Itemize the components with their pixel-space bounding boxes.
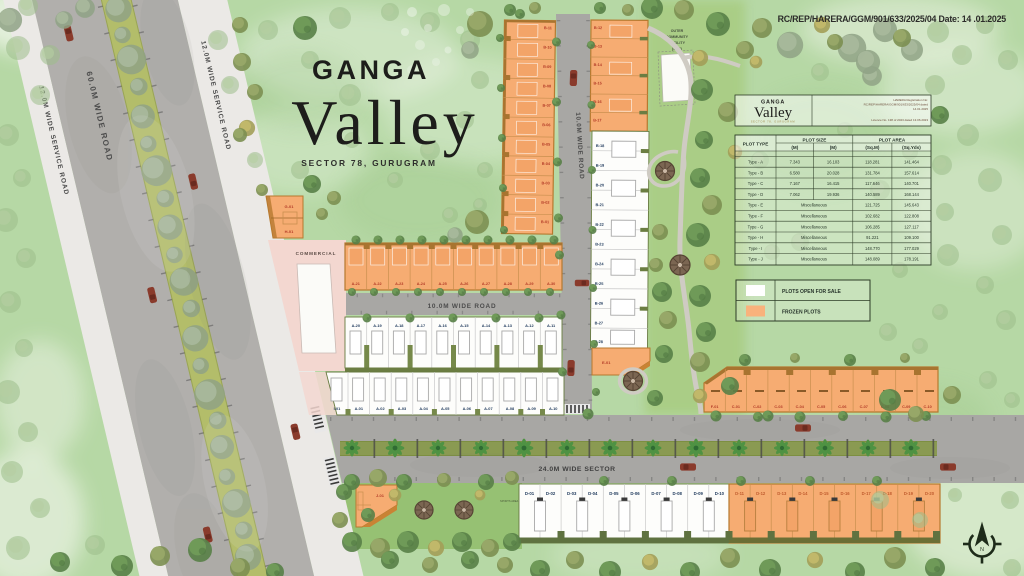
svg-text:B-18: B-18	[596, 143, 605, 148]
svg-text:A-21: A-21	[352, 282, 360, 286]
svg-text:A-10: A-10	[549, 406, 557, 411]
svg-text:C-06: C-06	[838, 405, 846, 409]
svg-text:A-08: A-08	[506, 406, 515, 411]
svg-text:(Sq.M): (Sq.M)	[865, 145, 880, 150]
svg-text:145.643: 145.643	[904, 203, 920, 208]
svg-text:C-07: C-07	[860, 405, 868, 409]
svg-text:B-06: B-06	[542, 123, 550, 127]
svg-text:D-17: D-17	[862, 491, 872, 496]
svg-text:Miscellaneous: Miscellaneous	[801, 214, 827, 219]
svg-text:A-16: A-16	[438, 323, 447, 328]
svg-text:SECTOR 78, GURUGRAM: SECTOR 78, GURUGRAM	[301, 158, 437, 168]
svg-text:A-15: A-15	[460, 323, 469, 328]
svg-text:Miscellaneous: Miscellaneous	[801, 257, 827, 262]
svg-text:B-22: B-22	[595, 222, 604, 227]
svg-text:7.062: 7.062	[790, 192, 801, 197]
svg-text:16.415: 16.415	[827, 181, 840, 186]
svg-text:178.191: 178.191	[904, 257, 920, 262]
svg-text:A-25: A-25	[438, 282, 446, 286]
svg-text:16.103: 16.103	[827, 160, 840, 165]
svg-text:PLOT SIZE: PLOT SIZE	[803, 138, 827, 143]
svg-text:B-08: B-08	[543, 84, 551, 88]
svg-text:140.589: 140.589	[865, 192, 881, 197]
svg-text:Miscellaneous: Miscellaneous	[801, 203, 827, 208]
svg-text:A-03: A-03	[398, 406, 407, 411]
svg-text:122.808: 122.808	[904, 214, 920, 219]
svg-text:24.0M WIDE SECTOR: 24.0M WIDE SECTOR	[538, 466, 615, 473]
svg-text:Type - A: Type - A	[748, 160, 763, 165]
svg-text:A-26: A-26	[460, 282, 468, 286]
svg-text:10.0M WIDE ROAD: 10.0M WIDE ROAD	[428, 303, 497, 310]
svg-text:A-17: A-17	[417, 323, 425, 328]
svg-text:A-02: A-02	[376, 406, 385, 411]
svg-text:I-01: I-01	[334, 406, 342, 411]
svg-text:B-01: B-01	[541, 220, 549, 224]
svg-text:D-15: D-15	[819, 491, 829, 496]
svg-text:D-11: D-11	[735, 491, 745, 496]
svg-text:B-11: B-11	[544, 26, 552, 30]
svg-text:E-01: E-01	[602, 360, 611, 365]
svg-text:C-01: C-01	[732, 405, 740, 409]
svg-text:B-19: B-19	[596, 163, 605, 168]
svg-text:A-30: A-30	[547, 282, 555, 286]
svg-text:GANGA: GANGA	[312, 55, 430, 85]
svg-text:PLOTS OPEN FOR SALE: PLOTS OPEN FOR SALE	[782, 289, 842, 295]
svg-text:RC/REP/HARERA/GGM/901/633/2025: RC/REP/HARERA/GGM/901/633/2025/04 dated	[864, 103, 929, 107]
svg-text:A-23: A-23	[395, 282, 403, 286]
svg-text:141.464: 141.464	[904, 160, 920, 165]
svg-text:C-09: C-09	[902, 405, 910, 409]
svg-text:A-28: A-28	[504, 282, 512, 286]
svg-text:148.089: 148.089	[865, 257, 881, 262]
svg-text:A-19: A-19	[373, 323, 382, 328]
svg-text:Type - H: Type - H	[748, 235, 764, 240]
svg-text:A-14: A-14	[482, 323, 491, 328]
svg-text:B-26: B-26	[595, 301, 604, 306]
svg-text:(M): (M)	[830, 145, 837, 150]
svg-text:SECTOR 78, GURUGRAM: SECTOR 78, GURUGRAM	[751, 120, 796, 124]
svg-text:N: N	[980, 547, 984, 553]
svg-text:Valley: Valley	[754, 105, 793, 121]
svg-text:A-01: A-01	[355, 406, 364, 411]
svg-text:D-19: D-19	[904, 491, 914, 496]
svg-text:D-03: D-03	[567, 491, 577, 496]
svg-text:B-12: B-12	[594, 26, 602, 30]
svg-text:B-13: B-13	[594, 45, 602, 49]
svg-text:D-13: D-13	[777, 491, 787, 496]
svg-text:Type - E: Type - E	[748, 203, 764, 208]
svg-text:D-02: D-02	[546, 491, 556, 496]
svg-text:G-01: G-01	[285, 204, 295, 209]
svg-text:B-03: B-03	[541, 181, 549, 185]
svg-text:A-12: A-12	[525, 323, 534, 328]
svg-text:B-25: B-25	[595, 281, 604, 286]
svg-text:D-08: D-08	[673, 491, 683, 496]
svg-text:131.784: 131.784	[865, 170, 881, 175]
svg-text:Type - D: Type - D	[748, 192, 764, 197]
svg-text:(M): (M)	[791, 145, 798, 150]
svg-text:127.117: 127.117	[904, 224, 919, 229]
svg-text:Type - B: Type - B	[748, 170, 764, 175]
svg-text:D-05: D-05	[609, 491, 619, 496]
svg-text:D-04: D-04	[588, 491, 598, 496]
svg-text:OUTER: OUTER	[671, 29, 684, 33]
svg-text:7.167: 7.167	[790, 181, 801, 186]
svg-text:177.029: 177.029	[904, 246, 920, 251]
svg-text:D-01: D-01	[525, 491, 535, 496]
svg-text:D-16: D-16	[841, 491, 851, 496]
svg-text:F-01: F-01	[711, 405, 719, 409]
svg-text:102.682: 102.682	[865, 214, 881, 219]
svg-text:B-07: B-07	[543, 104, 551, 108]
svg-text:Type - C: Type - C	[748, 181, 764, 186]
svg-text:HARERA Registration No:: HARERA Registration No:	[893, 98, 928, 102]
svg-text:B-02: B-02	[541, 201, 549, 205]
svg-text:D-06: D-06	[630, 491, 640, 496]
svg-text:B-24: B-24	[595, 261, 604, 266]
svg-text:117.646: 117.646	[865, 181, 880, 186]
svg-text:D-12: D-12	[756, 491, 766, 496]
svg-text:A-06: A-06	[463, 406, 472, 411]
svg-text:C-02: C-02	[753, 405, 761, 409]
svg-text:B-20: B-20	[596, 182, 604, 187]
svg-text:PLOT TYPE: PLOT TYPE	[743, 142, 769, 147]
svg-text:Type - I: Type - I	[749, 246, 763, 251]
svg-text:19.936: 19.936	[827, 192, 840, 197]
svg-text:A-11: A-11	[547, 323, 556, 328]
svg-text:118.281: 118.281	[865, 160, 880, 165]
svg-text:C-10: C-10	[923, 405, 931, 409]
svg-text:D-09: D-09	[694, 491, 704, 496]
svg-text:D-10: D-10	[715, 491, 725, 496]
svg-text:B-10: B-10	[543, 46, 551, 50]
svg-text:20.028: 20.028	[827, 170, 840, 175]
svg-text:D-07: D-07	[651, 491, 661, 496]
svg-text:J-01: J-01	[376, 493, 385, 498]
svg-text:6.580: 6.580	[790, 170, 801, 175]
svg-text:SPORTS AREA: SPORTS AREA	[500, 499, 519, 503]
svg-text:COMMERCIAL: COMMERCIAL	[296, 251, 337, 256]
svg-text:168.144: 168.144	[904, 192, 920, 197]
svg-text:C-03: C-03	[774, 405, 782, 409]
svg-text:140.701: 140.701	[904, 181, 920, 186]
svg-text:B-15: B-15	[594, 82, 602, 86]
svg-text:Type - G: Type - G	[748, 224, 764, 229]
svg-text:C-05: C-05	[817, 405, 825, 409]
svg-text:B-09: B-09	[543, 65, 551, 69]
svg-text:A-07: A-07	[484, 406, 492, 411]
svg-text:RC/REP/HARERA/GGM/901/633/2025: RC/REP/HARERA/GGM/901/633/2025/04 Date: …	[778, 14, 1007, 24]
svg-text:A-05: A-05	[441, 406, 450, 411]
svg-text:(Sq.Yds): (Sq.Yds)	[902, 145, 921, 150]
svg-text:PLOT AREA: PLOT AREA	[879, 138, 906, 143]
svg-text:A-18: A-18	[395, 323, 404, 328]
svg-text:Miscellaneous: Miscellaneous	[801, 246, 827, 251]
svg-text:Miscellaneous: Miscellaneous	[801, 235, 827, 240]
svg-text:B-23: B-23	[595, 242, 604, 247]
svg-text:B-14: B-14	[594, 63, 603, 67]
svg-text:106.285: 106.285	[865, 224, 881, 229]
svg-text:Licence No. 138 of 2023 dated: Licence No. 138 of 2023 dated 13.06.2023	[871, 118, 928, 122]
svg-text:D-20: D-20	[925, 491, 935, 496]
svg-text:121.725: 121.725	[865, 203, 881, 208]
svg-text:148.770: 148.770	[865, 246, 881, 251]
svg-text:109.100: 109.100	[904, 235, 920, 240]
svg-text:B-05: B-05	[542, 143, 550, 147]
svg-text:D-14: D-14	[798, 491, 808, 496]
svg-text:B-27: B-27	[595, 320, 603, 325]
svg-text:157.614: 157.614	[904, 170, 920, 175]
svg-text:91.221: 91.221	[866, 235, 879, 240]
svg-text:C-04: C-04	[796, 405, 805, 409]
svg-text:A-22: A-22	[373, 282, 381, 286]
svg-text:A-20: A-20	[352, 323, 360, 328]
svg-text:A-27: A-27	[482, 282, 490, 286]
svg-text:A-04: A-04	[419, 406, 428, 411]
svg-text:Type - J: Type - J	[748, 257, 763, 262]
svg-text:B-04: B-04	[542, 162, 551, 166]
svg-text:A-09: A-09	[527, 406, 536, 411]
svg-text:7.343: 7.343	[790, 160, 801, 165]
svg-text:B-17: B-17	[593, 119, 601, 123]
svg-text:A-24: A-24	[417, 282, 426, 286]
svg-text:Type - F: Type - F	[748, 214, 764, 219]
svg-text:FROZEN PLOTS: FROZEN PLOTS	[782, 310, 821, 316]
svg-text:Miscellaneous: Miscellaneous	[801, 224, 827, 229]
svg-text:14.01.2025: 14.01.2025	[913, 107, 928, 111]
svg-text:A-13: A-13	[503, 323, 512, 328]
svg-text:B-21: B-21	[595, 202, 604, 207]
svg-text:A-29: A-29	[525, 282, 533, 286]
svg-text:Valley: Valley	[291, 87, 479, 158]
svg-text:H-01: H-01	[285, 229, 294, 234]
